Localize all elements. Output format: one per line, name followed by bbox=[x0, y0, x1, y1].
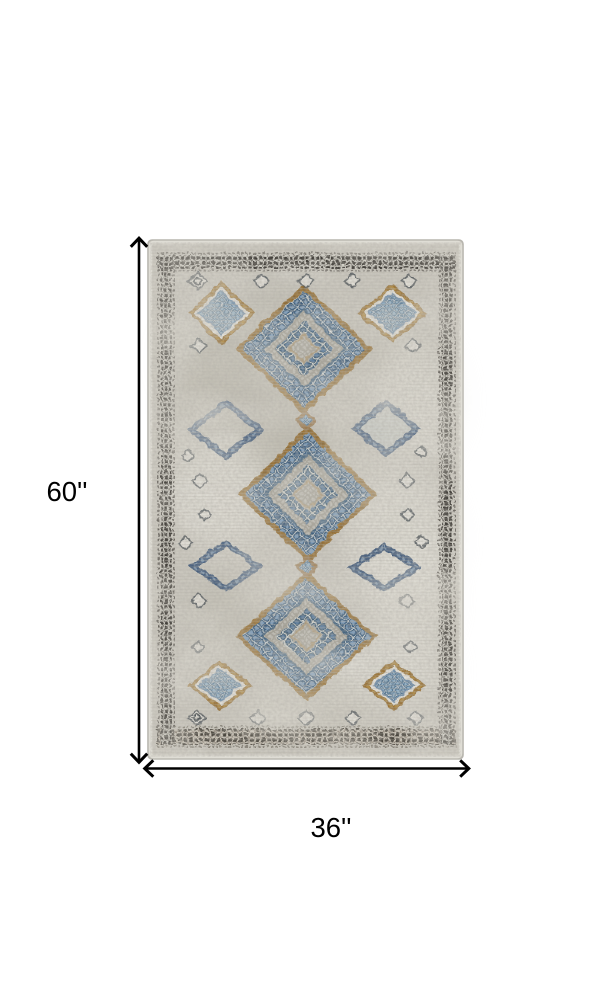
svg-text:36'': 36'' bbox=[310, 812, 351, 843]
svg-text:60'': 60'' bbox=[46, 476, 87, 507]
